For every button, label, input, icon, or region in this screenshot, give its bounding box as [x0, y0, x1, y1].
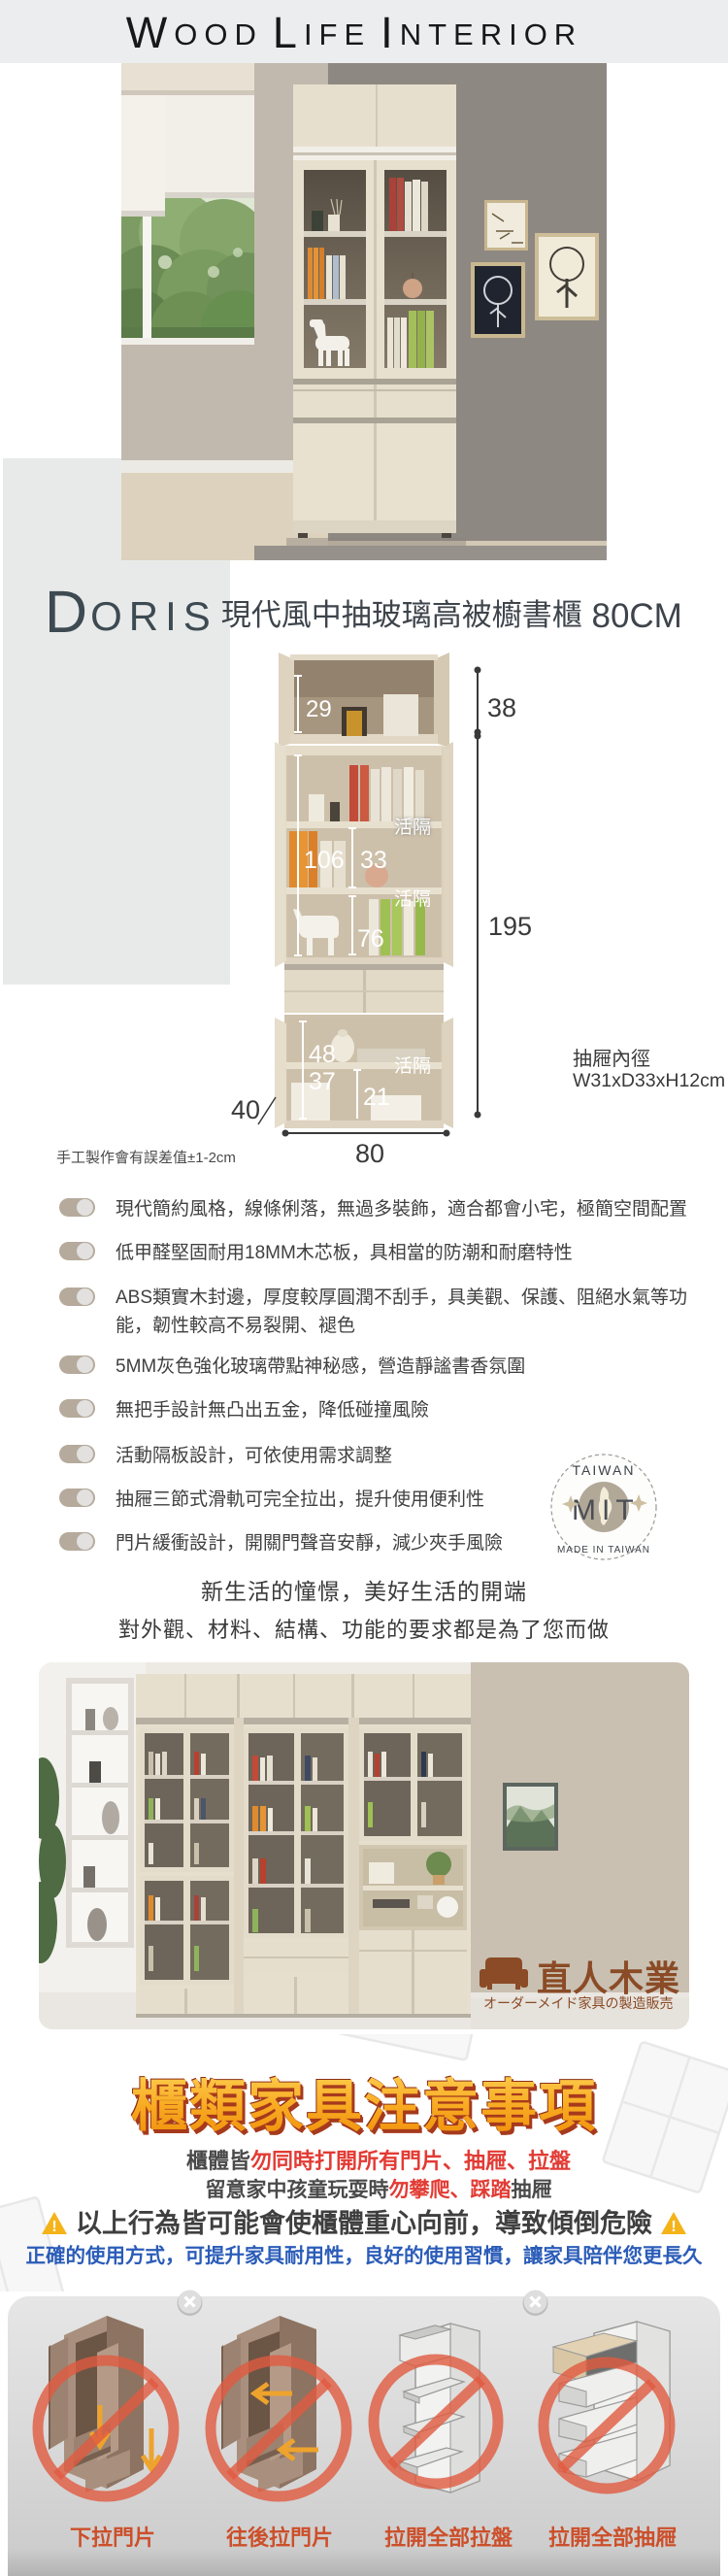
- svg-text:拉開全部抽屜: 拉開全部抽屜: [548, 2526, 677, 2550]
- svg-text:活隔: 活隔: [394, 817, 431, 838]
- svg-text:直人木業: 直人木業: [537, 1959, 680, 1998]
- svg-text:80: 80: [355, 1139, 384, 1168]
- svg-text:76: 76: [357, 925, 384, 953]
- svg-text:!: !: [671, 2219, 676, 2235]
- svg-text:TAIWAN: TAIWAN: [573, 1462, 636, 1478]
- svg-text:活隔: 活隔: [394, 888, 431, 910]
- svg-text:21: 21: [363, 1084, 390, 1111]
- svg-text:MIT: MIT: [572, 1494, 640, 1526]
- svg-text:33: 33: [360, 847, 387, 874]
- svg-text:37: 37: [309, 1068, 336, 1095]
- svg-text:40: 40: [231, 1095, 260, 1124]
- svg-text:往後拉門片: 往後拉門片: [226, 2526, 333, 2550]
- svg-text:195: 195: [488, 912, 532, 941]
- svg-text:下拉門片: 下拉門片: [70, 2526, 155, 2550]
- svg-text:48: 48: [309, 1041, 336, 1068]
- svg-text:106: 106: [304, 847, 345, 874]
- svg-text:活隔: 活隔: [394, 1055, 431, 1077]
- svg-text:38: 38: [487, 693, 516, 722]
- svg-text:オーダーメイド家具の製造販売: オーダーメイド家具の製造販売: [483, 1995, 673, 2011]
- svg-text:29: 29: [306, 696, 332, 722]
- svg-text:MADE IN TAIWAN: MADE IN TAIWAN: [557, 1545, 650, 1556]
- svg-text:!: !: [52, 2219, 57, 2235]
- svg-text:抽屜內徑: 抽屜內徑: [573, 1048, 650, 1070]
- svg-text:W31xD33xH12cm: W31xD33xH12cm: [573, 1070, 725, 1091]
- svg-text:拉開全部拉盤: 拉開全部拉盤: [384, 2526, 513, 2550]
